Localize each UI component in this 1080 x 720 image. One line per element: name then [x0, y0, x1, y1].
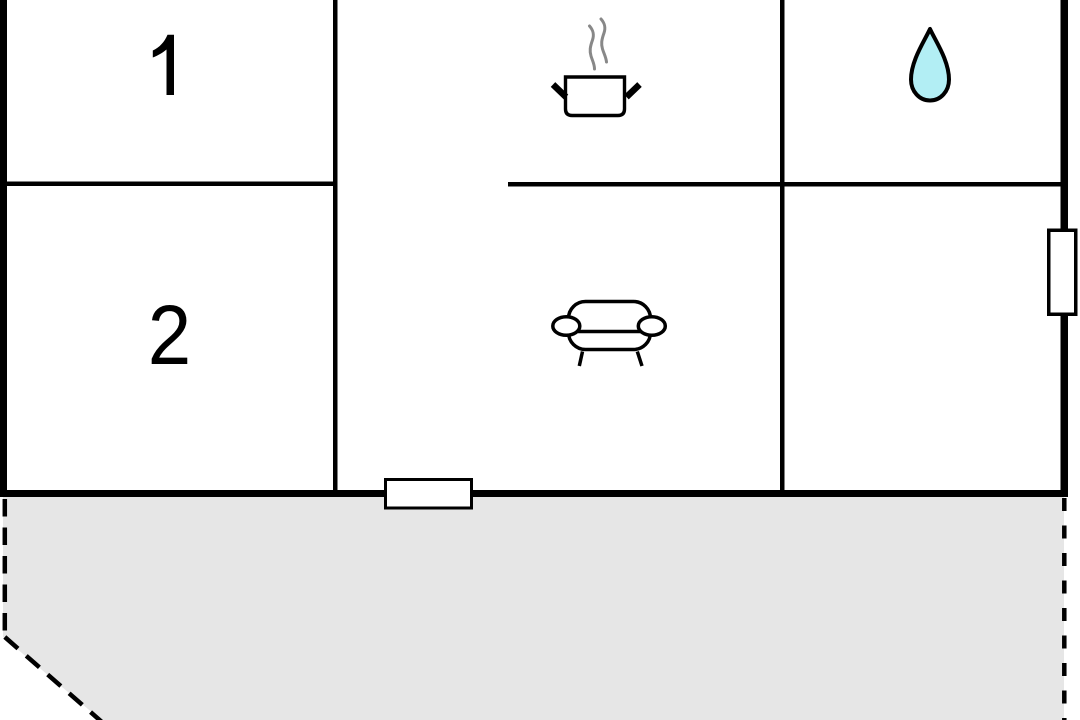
svg-text:2: 2	[148, 289, 191, 382]
